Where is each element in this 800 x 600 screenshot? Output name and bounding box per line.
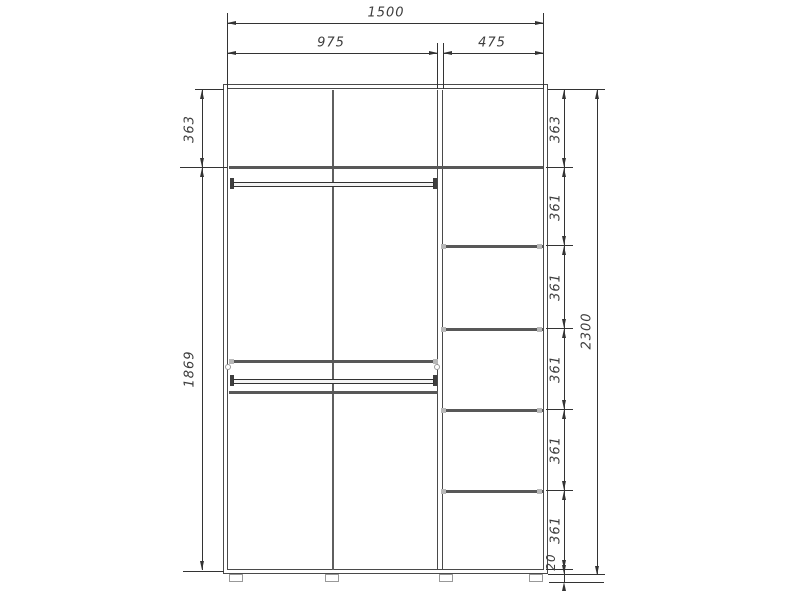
- hanging-rail-top: [233, 182, 434, 187]
- dim-arrow: [429, 51, 438, 55]
- dim-arrow: [562, 491, 566, 500]
- dim-arrow: [562, 410, 566, 419]
- extension-line: [546, 245, 573, 246]
- dim-arrow: [227, 21, 236, 25]
- top-shelf-full-width: [229, 166, 543, 169]
- dim-label-overall-height: 2300: [580, 312, 595, 349]
- dim-arrow: [562, 329, 566, 338]
- dim-arrow: [200, 168, 204, 177]
- left-shelf-upper: [229, 360, 438, 363]
- extension-line-floor: [549, 582, 604, 583]
- dim-line-right-section: [443, 53, 544, 54]
- dim-line-left-section: [227, 53, 438, 54]
- left-shelf-lower: [229, 391, 438, 394]
- dim-label-left-main-compartment: 1869: [183, 350, 198, 387]
- connector-mark: [537, 489, 542, 494]
- adjustable-foot: [229, 574, 243, 582]
- dim-line-overall-height: [597, 90, 598, 575]
- dim-label-right-seg-3: 361: [549, 273, 564, 301]
- adjustable-foot: [325, 574, 339, 582]
- dim-label-right-seg-2: 361: [549, 193, 564, 221]
- dim-arrow: [562, 236, 566, 245]
- extension-line: [546, 167, 573, 168]
- connector-mark: [537, 244, 542, 249]
- adjustable-foot: [439, 574, 453, 582]
- connector-mark: [537, 327, 542, 332]
- dim-arrow: [562, 565, 566, 574]
- connector-mark: [229, 359, 234, 364]
- rail-holder-circle: [434, 364, 440, 370]
- dim-arrow: [562, 168, 566, 177]
- dim-arrow: [200, 561, 204, 570]
- dim-arrow: [535, 21, 544, 25]
- extension-line: [546, 409, 573, 410]
- dim-arrow: [562, 90, 566, 99]
- dim-arrow: [562, 582, 566, 591]
- connector-mark: [441, 327, 446, 332]
- center-vertical-line: [332, 90, 334, 570]
- dim-label-right-seg-6: 361: [549, 516, 564, 544]
- dim-label-right-seg-1: 363: [549, 115, 564, 143]
- dim-label-right-section-width: 475: [478, 36, 506, 51]
- right-shelf-2: [443, 328, 543, 331]
- dim-label-left-section-width: 975: [317, 36, 345, 51]
- dim-label-overall-width: 1500: [367, 6, 404, 21]
- technical-drawing-canvas: 1500 975 475 363 1869 363 361 361 361 36…: [0, 0, 800, 600]
- dim-arrow: [227, 51, 236, 55]
- rail-holder-circle: [225, 364, 231, 370]
- dim-label-right-seg-5: 361: [549, 436, 564, 464]
- connector-mark: [441, 244, 446, 249]
- dim-label-base-gap: 20: [544, 553, 558, 570]
- dim-arrow: [562, 319, 566, 328]
- dim-arrow: [200, 90, 204, 99]
- dim-line-overall-width: [227, 23, 544, 24]
- right-shelf-1: [443, 245, 543, 248]
- extension-line: [180, 167, 227, 168]
- dim-arrow: [595, 566, 599, 575]
- extension-line: [546, 490, 573, 491]
- dim-arrow: [562, 481, 566, 490]
- dim-arrow: [562, 400, 566, 409]
- connector-mark: [441, 408, 446, 413]
- right-shelf-3: [443, 409, 543, 412]
- dim-arrow: [562, 246, 566, 255]
- dim-label-left-top-compartment: 363: [183, 115, 198, 143]
- dim-arrow: [535, 51, 544, 55]
- adjustable-foot: [529, 574, 543, 582]
- extension-line: [546, 328, 573, 329]
- dim-arrow: [200, 158, 204, 167]
- dim-arrow: [562, 158, 566, 167]
- dim-arrow: [443, 51, 452, 55]
- dim-label-right-seg-4: 361: [549, 355, 564, 383]
- connector-mark: [537, 408, 542, 413]
- extension-line: [183, 571, 224, 572]
- right-shelf-4: [443, 490, 543, 493]
- hanging-rail-middle: [233, 379, 434, 384]
- connector-mark: [441, 489, 446, 494]
- dim-arrow: [595, 90, 599, 99]
